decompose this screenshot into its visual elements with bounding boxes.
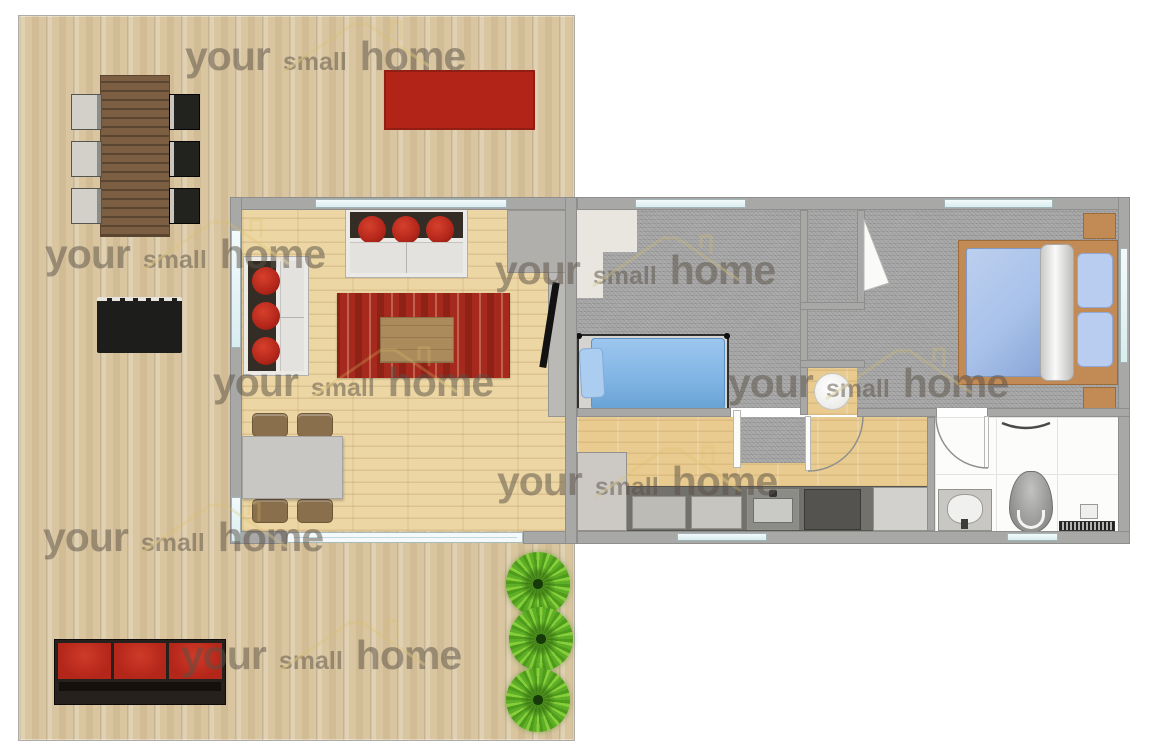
watermark-word-your: your <box>213 362 298 403</box>
watermark: your small home <box>213 362 493 403</box>
roof-icon <box>139 499 299 561</box>
watermark-word-home: home <box>360 36 465 77</box>
watermark: your small home <box>497 461 777 502</box>
watermark-word-home: home <box>220 234 325 275</box>
watermark-layer: your small home your small home your sma… <box>0 0 1150 754</box>
watermark: your small home <box>43 517 323 558</box>
roof-icon <box>593 443 753 505</box>
roof-icon <box>277 617 437 679</box>
watermark: your small home <box>45 234 325 275</box>
watermark-word-your: your <box>45 234 130 275</box>
watermark-word-your: your <box>185 36 270 77</box>
watermark-word-small: small <box>595 475 659 500</box>
floor-plan: your small home your small home your sma… <box>0 0 1150 754</box>
watermark-word-your: your <box>181 635 266 676</box>
watermark: your small home <box>495 250 775 291</box>
watermark-word-small: small <box>283 50 347 75</box>
watermark-word-home: home <box>672 461 777 502</box>
watermark: your small home <box>185 36 465 77</box>
roof-icon <box>281 18 441 80</box>
watermark-word-home: home <box>356 635 461 676</box>
watermark: your small home <box>728 363 1008 404</box>
watermark-word-small: small <box>593 264 657 289</box>
watermark-word-small: small <box>311 376 375 401</box>
watermark-word-home: home <box>388 362 493 403</box>
roof-icon <box>591 232 751 294</box>
roof-icon <box>824 345 984 407</box>
watermark-word-your: your <box>497 461 582 502</box>
watermark-word-small: small <box>141 531 205 556</box>
watermark: your small home <box>181 635 461 676</box>
roof-icon <box>309 344 469 406</box>
watermark-word-your: your <box>728 363 813 404</box>
watermark-word-your: your <box>495 250 580 291</box>
roof-icon <box>141 216 301 278</box>
watermark-word-small: small <box>826 377 890 402</box>
watermark-word-your: your <box>43 517 128 558</box>
watermark-word-small: small <box>143 248 207 273</box>
watermark-word-home: home <box>218 517 323 558</box>
watermark-word-home: home <box>670 250 775 291</box>
watermark-word-small: small <box>279 649 343 674</box>
watermark-word-home: home <box>903 363 1008 404</box>
